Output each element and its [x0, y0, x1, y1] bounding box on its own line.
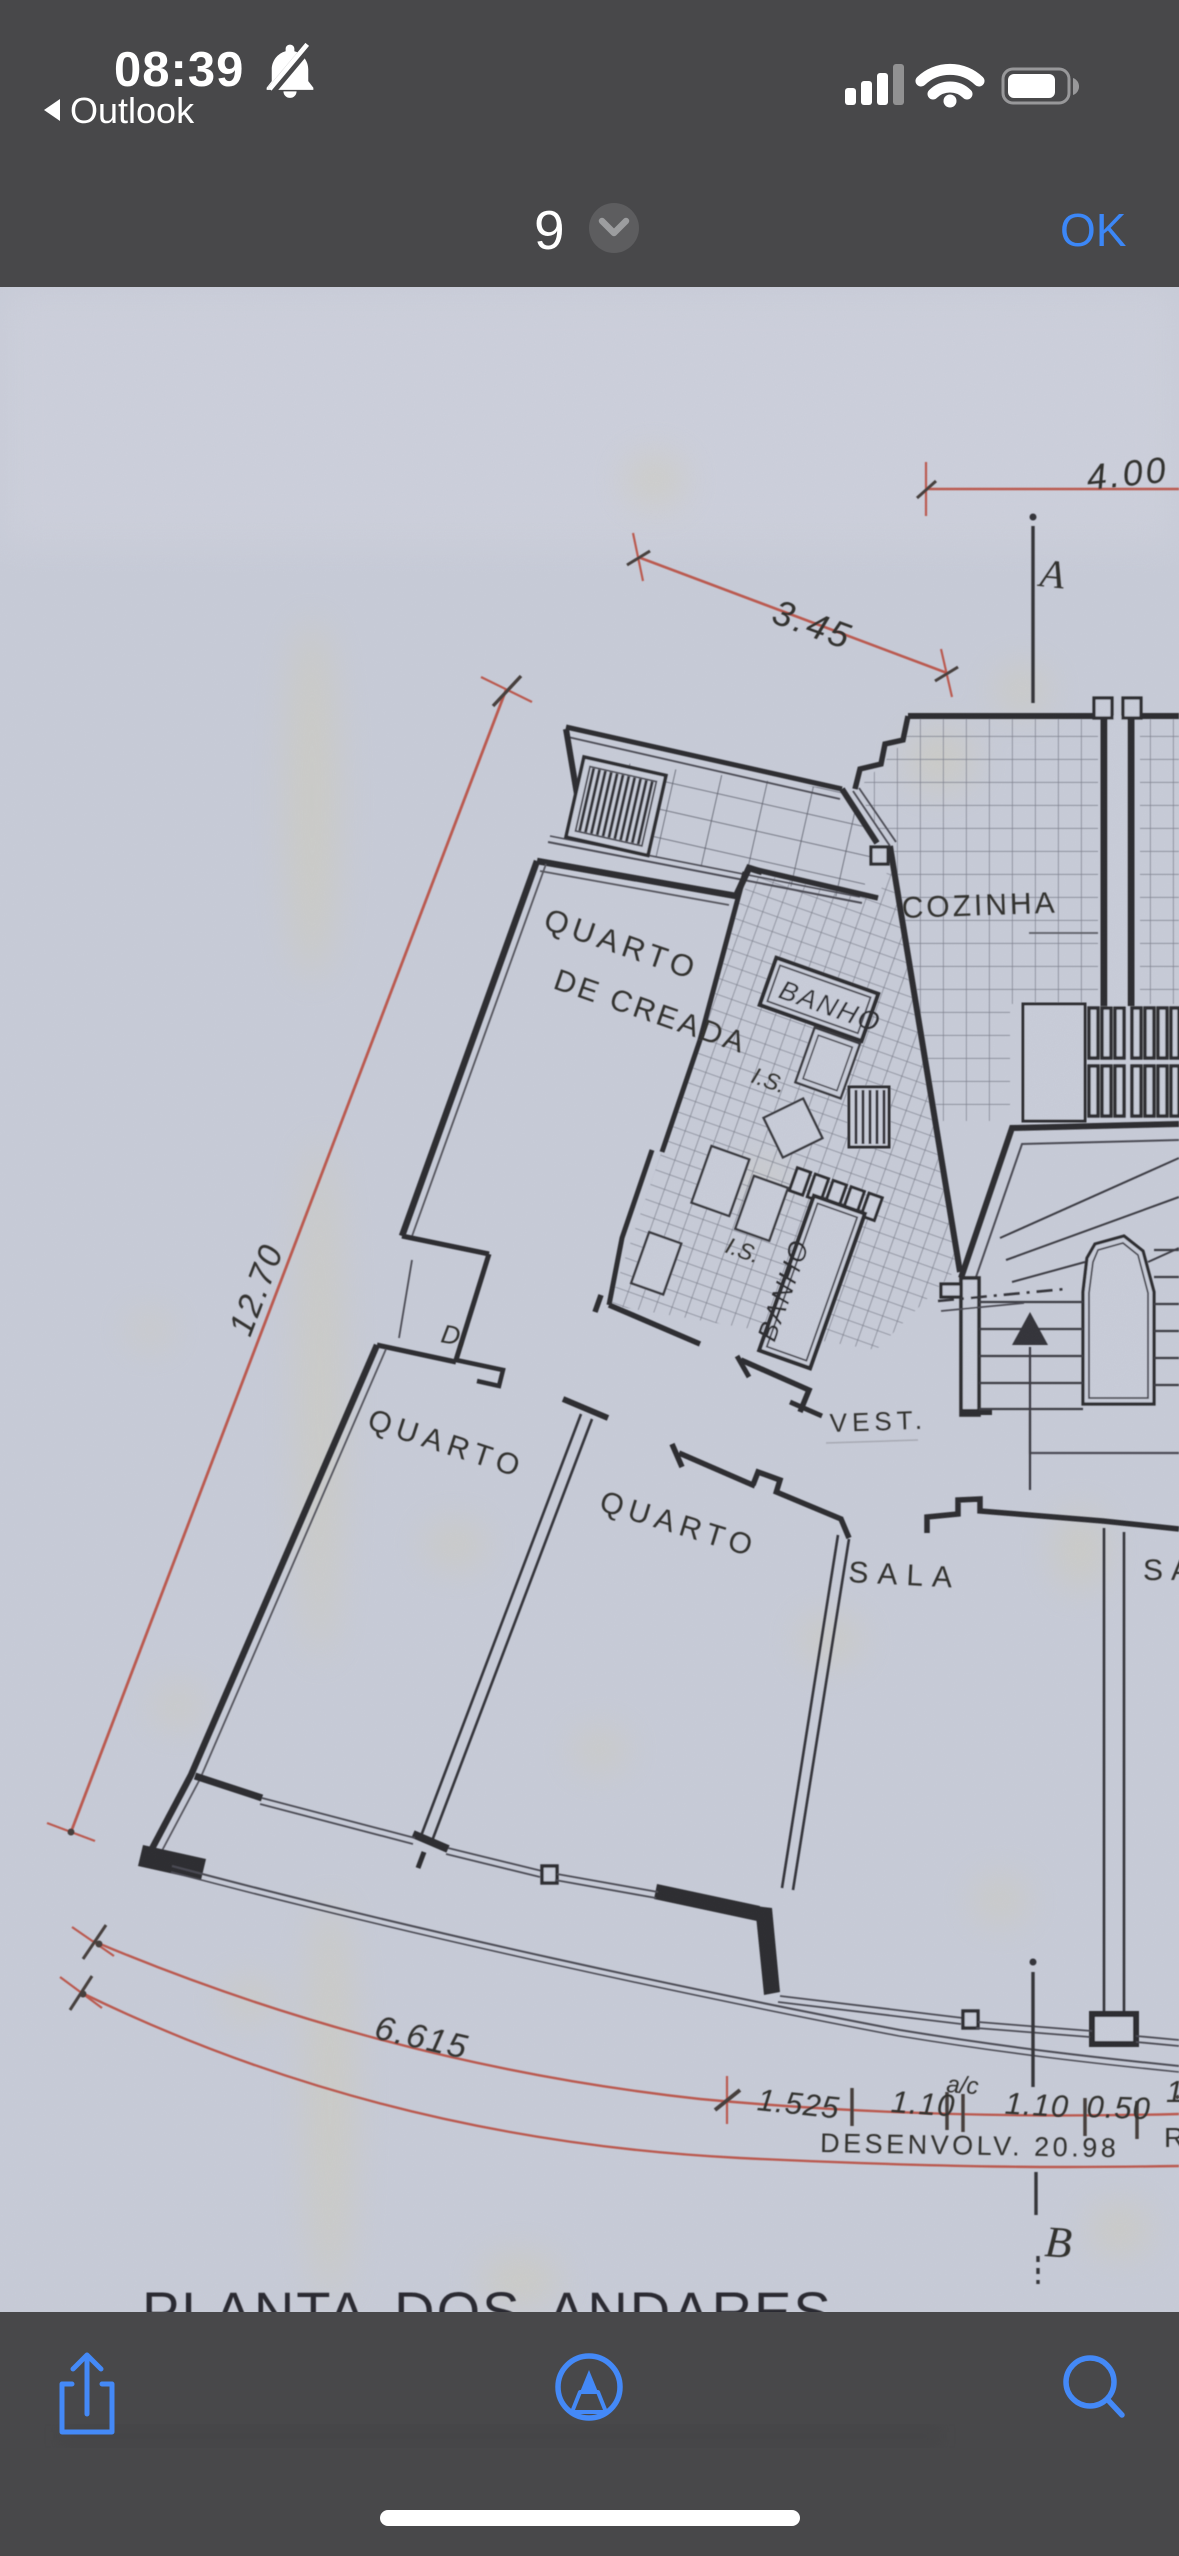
- svg-text:Outlook: Outlook: [70, 90, 195, 131]
- svg-text:08:39: 08:39: [114, 43, 244, 97]
- svg-text:OK: OK: [1060, 204, 1127, 256]
- svg-text:9: 9: [534, 199, 565, 261]
